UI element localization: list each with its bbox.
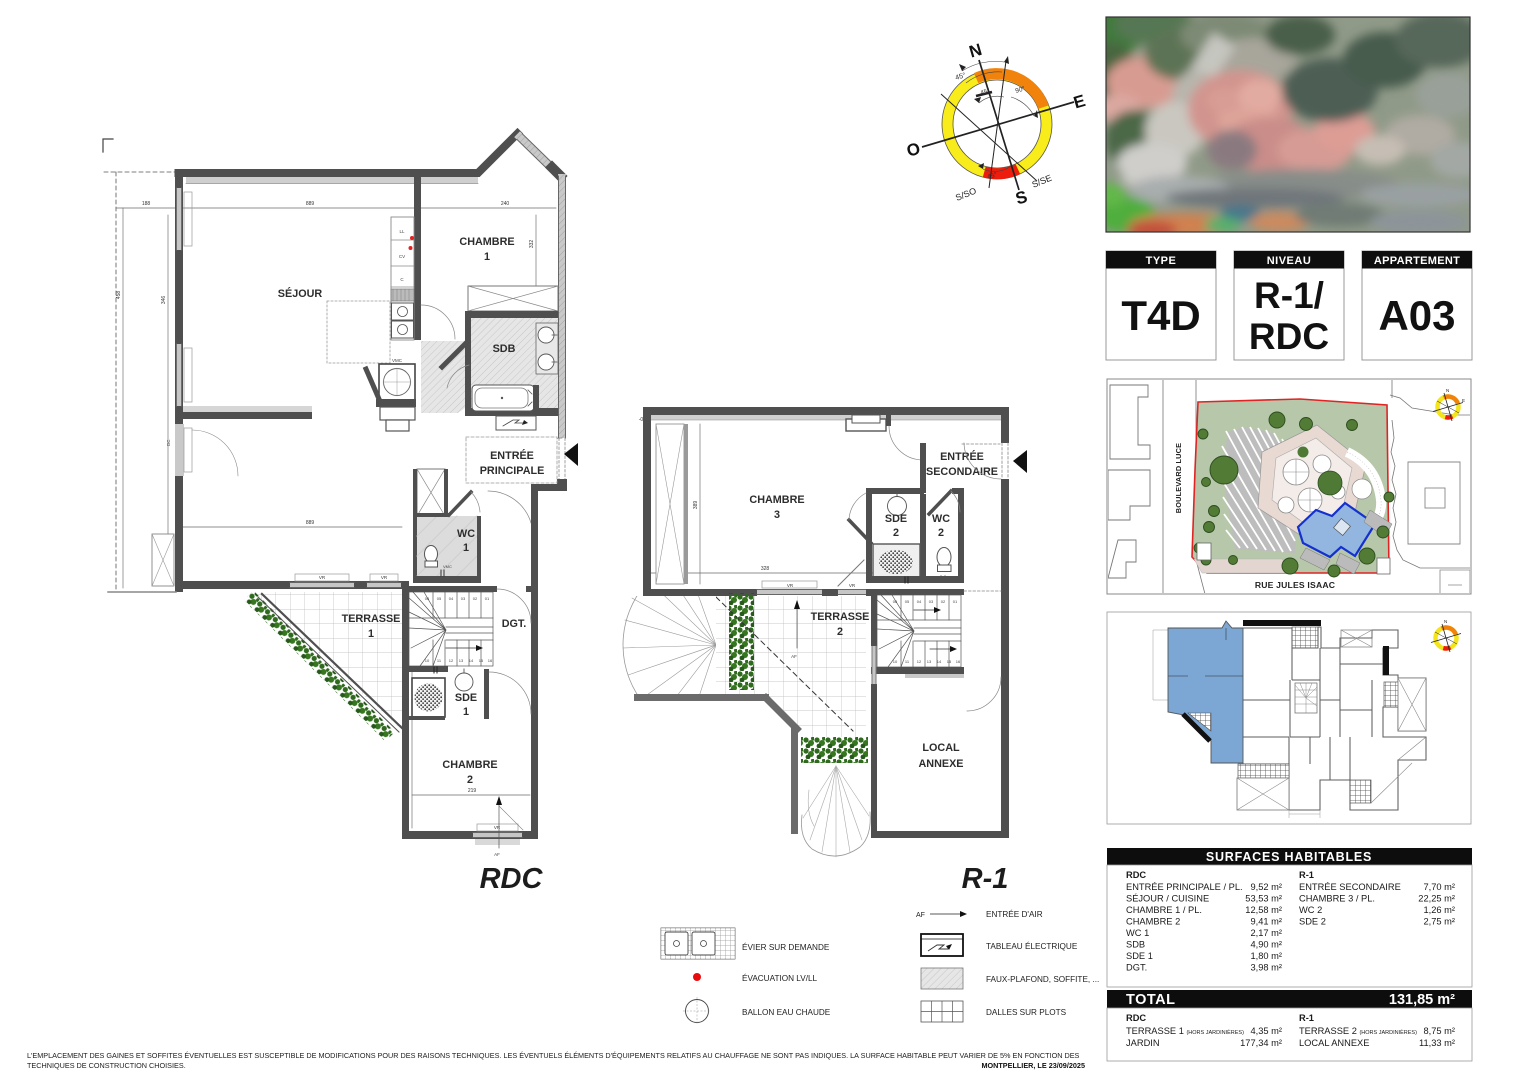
- svg-text:01: 01: [485, 596, 490, 601]
- svg-text:CHAMBRE: CHAMBRE: [749, 494, 804, 506]
- svg-text:SÉJOUR: SÉJOUR: [278, 287, 323, 300]
- svg-text:1,26 m²: 1,26 m²: [1423, 905, 1455, 915]
- svg-text:JARDIN: JARDIN: [1126, 1038, 1160, 1048]
- svg-text:T4D: T4D: [1121, 292, 1200, 339]
- svg-text:VR: VR: [494, 825, 501, 830]
- svg-text:ENTRÉE: ENTRÉE: [490, 449, 534, 462]
- svg-text:CHAMBRE 2: CHAMBRE 2: [1126, 917, 1180, 927]
- svg-text:TERRASSE: TERRASSE: [342, 613, 401, 625]
- svg-text:53,53 m²: 53,53 m²: [1245, 894, 1282, 904]
- svg-text:E: E: [1462, 398, 1465, 403]
- svg-text:02: 02: [473, 596, 478, 601]
- svg-text:16: 16: [956, 659, 961, 664]
- svg-text:2,75 m²: 2,75 m²: [1423, 917, 1455, 927]
- svg-text:SDB: SDB: [493, 343, 516, 355]
- svg-text:01: 01: [953, 599, 958, 604]
- svg-text:A03: A03: [1378, 292, 1455, 339]
- svg-text:SDB: SDB: [1126, 940, 1145, 950]
- svg-text:13: 13: [459, 658, 464, 663]
- svg-text:VMC: VMC: [443, 564, 452, 569]
- svg-text:9,41 m²: 9,41 m²: [1250, 917, 1282, 927]
- svg-text:VR: VR: [319, 575, 326, 580]
- svg-text:ENTRÉE SECONDAIRE: ENTRÉE SECONDAIRE: [1299, 882, 1401, 892]
- svg-text:7,70 m²: 7,70 m²: [1423, 882, 1455, 892]
- svg-text:LOCAL: LOCAL: [922, 742, 960, 754]
- svg-text:WC 2: WC 2: [1299, 905, 1322, 915]
- svg-text:TOTAL: TOTAL: [1126, 992, 1175, 1008]
- svg-text:RDC: RDC: [1126, 1013, 1146, 1023]
- svg-text:06: 06: [893, 599, 898, 604]
- svg-text:15: 15: [479, 658, 484, 663]
- svg-text:DGT.: DGT.: [502, 618, 527, 630]
- svg-text:131,85 m²: 131,85 m²: [1389, 992, 1455, 1008]
- svg-text:CHAMBRE 1 / PL.: CHAMBRE 1 / PL.: [1126, 905, 1202, 915]
- svg-text:SDE 2: SDE 2: [1299, 917, 1326, 927]
- svg-text:WC: WC: [932, 513, 950, 525]
- svg-text:ÉVACUATION LV/LL: ÉVACUATION LV/LL: [742, 973, 818, 983]
- svg-text:N: N: [1444, 619, 1447, 624]
- svg-text:328: 328: [761, 566, 770, 572]
- svg-text:RDC: RDC: [1126, 870, 1146, 880]
- svg-text:1,80 m²: 1,80 m²: [1250, 951, 1282, 961]
- svg-text:2: 2: [467, 774, 473, 786]
- svg-text:R-1: R-1: [1299, 870, 1314, 880]
- svg-text:AF: AF: [916, 912, 925, 919]
- svg-text:10: 10: [425, 658, 430, 663]
- svg-text:02: 02: [941, 599, 946, 604]
- svg-text:04: 04: [917, 599, 922, 604]
- svg-text:06: 06: [425, 596, 430, 601]
- svg-text:1: 1: [484, 251, 490, 263]
- svg-text:458: 458: [116, 291, 122, 300]
- svg-text:14: 14: [469, 658, 474, 663]
- svg-text:8,75 m²: 8,75 m²: [1423, 1026, 1455, 1036]
- svg-text:05: 05: [905, 599, 910, 604]
- svg-text:N: N: [1446, 388, 1449, 393]
- svg-text:188: 188: [142, 201, 151, 207]
- svg-text:RDC: RDC: [480, 863, 544, 895]
- svg-text:2: 2: [837, 626, 843, 638]
- svg-text:1: 1: [463, 542, 469, 554]
- svg-text:04: 04: [449, 596, 454, 601]
- svg-text:VR: VR: [849, 583, 856, 588]
- svg-text:DC: DC: [166, 439, 171, 446]
- svg-text:VR: VR: [381, 575, 388, 580]
- svg-text:332: 332: [529, 240, 535, 249]
- svg-text:ÉVIER SUR DEMANDE: ÉVIER SUR DEMANDE: [742, 942, 830, 952]
- svg-text:BALLON EAU CHAUDE: BALLON EAU CHAUDE: [742, 1008, 831, 1017]
- svg-text:VMC: VMC: [392, 358, 403, 363]
- svg-text:05: 05: [437, 596, 442, 601]
- svg-text:16: 16: [488, 658, 493, 663]
- svg-text:TECHNIQUES DE CONSTRUCTION CHO: TECHNIQUES DE CONSTRUCTION CHOISIES.: [27, 1061, 186, 1070]
- svg-text:ENTRÉE: ENTRÉE: [940, 450, 984, 463]
- svg-text:4,90 m²: 4,90 m²: [1250, 940, 1282, 950]
- svg-text:R-1: R-1: [962, 863, 1009, 895]
- svg-text:TYPE: TYPE: [1146, 255, 1177, 267]
- svg-text:ENTRÉE PRINCIPALE / PL.: ENTRÉE PRINCIPALE / PL.: [1126, 882, 1243, 892]
- svg-text:AF: AF: [791, 654, 797, 659]
- svg-text:14: 14: [937, 659, 942, 664]
- svg-text:SDE: SDE: [455, 692, 477, 704]
- svg-text:SDE: SDE: [885, 513, 907, 525]
- svg-text:CV: CV: [399, 254, 405, 259]
- svg-text:FAUX-PLAFOND, SOFFITE, ...: FAUX-PLAFOND, SOFFITE, ...: [986, 975, 1099, 984]
- svg-text:03: 03: [929, 599, 934, 604]
- svg-text:389: 389: [693, 501, 699, 510]
- svg-text:RDC: RDC: [1249, 316, 1329, 357]
- svg-text:CHAMBRE: CHAMBRE: [442, 759, 497, 771]
- svg-text:SDE 1: SDE 1: [1126, 951, 1153, 961]
- svg-text:03: 03: [461, 596, 466, 601]
- svg-text:SURFACES HABITABLES: SURFACES HABITABLES: [1206, 850, 1372, 864]
- svg-text:LL: LL: [399, 229, 405, 234]
- svg-text:AF: AF: [494, 852, 500, 857]
- svg-text:12,58 m²: 12,58 m²: [1245, 905, 1282, 915]
- svg-text:NIVEAU: NIVEAU: [1267, 255, 1312, 267]
- svg-text:9,52 m²: 9,52 m²: [1250, 882, 1282, 892]
- svg-text:LOCAL ANNEXE: LOCAL ANNEXE: [1299, 1038, 1369, 1048]
- svg-text:CHAMBRE 3 / PL.: CHAMBRE 3 / PL.: [1299, 894, 1375, 904]
- svg-text:RUE JULES ISAAC: RUE JULES ISAAC: [1255, 580, 1335, 590]
- svg-text:889: 889: [306, 201, 315, 207]
- svg-text:889: 889: [306, 520, 315, 526]
- svg-text:WC: WC: [457, 528, 475, 540]
- svg-text:346: 346: [161, 296, 167, 305]
- svg-text:ANNEXE: ANNEXE: [919, 758, 964, 770]
- svg-text:ENTRÉE D'AIR: ENTRÉE D'AIR: [986, 909, 1043, 919]
- svg-text:240: 240: [501, 201, 510, 207]
- svg-text:10: 10: [893, 659, 898, 664]
- svg-text:DALLES SUR PLOTS: DALLES SUR PLOTS: [986, 1008, 1067, 1017]
- svg-text:1: 1: [463, 706, 469, 718]
- svg-text:R-1: R-1: [1299, 1013, 1314, 1023]
- svg-text:DGT.: DGT.: [1126, 963, 1147, 973]
- svg-text:PRINCIPALE: PRINCIPALE: [480, 465, 545, 477]
- svg-text:TABLEAU ÉLECTRIQUE: TABLEAU ÉLECTRIQUE: [986, 941, 1078, 951]
- svg-text:MONTPELLIER, LE 23/09/2025: MONTPELLIER, LE 23/09/2025: [981, 1061, 1085, 1070]
- svg-text:SÉJOUR / CUISINE: SÉJOUR / CUISINE: [1126, 894, 1209, 904]
- svg-text:TERRASSE: TERRASSE: [811, 611, 870, 623]
- svg-text:R-1/: R-1/: [1254, 275, 1324, 316]
- svg-text:12: 12: [917, 659, 922, 664]
- svg-text:BOULEVARD LUCE: BOULEVARD LUCE: [1174, 443, 1183, 513]
- svg-text:15: 15: [947, 659, 952, 664]
- svg-text:2,17 m²: 2,17 m²: [1250, 928, 1282, 938]
- svg-text:11,33 m²: 11,33 m²: [1419, 1038, 1455, 1048]
- svg-text:1: 1: [368, 628, 374, 640]
- svg-text:WC 1: WC 1: [1126, 928, 1149, 938]
- svg-text:219: 219: [468, 788, 477, 794]
- svg-text:13: 13: [927, 659, 932, 664]
- svg-text:CHAMBRE: CHAMBRE: [459, 236, 514, 248]
- svg-text:L'EMPLACEMENT DES GAINES ET SO: L'EMPLACEMENT DES GAINES ET SOFFITES ÉVE…: [27, 1051, 1080, 1060]
- svg-text:2: 2: [938, 527, 944, 539]
- svg-text:4,35 m²: 4,35 m²: [1250, 1026, 1282, 1036]
- svg-text:2: 2: [893, 527, 899, 539]
- svg-text:22,25 m²: 22,25 m²: [1418, 894, 1455, 904]
- svg-text:APPARTEMENT: APPARTEMENT: [1374, 255, 1460, 267]
- svg-text:VR: VR: [787, 583, 794, 588]
- svg-text:-0: -0: [639, 417, 644, 423]
- svg-text:12: 12: [449, 658, 454, 663]
- svg-text:3,98 m²: 3,98 m²: [1250, 963, 1282, 973]
- svg-text:177,34 m²: 177,34 m²: [1240, 1038, 1282, 1048]
- svg-text:3: 3: [774, 509, 780, 521]
